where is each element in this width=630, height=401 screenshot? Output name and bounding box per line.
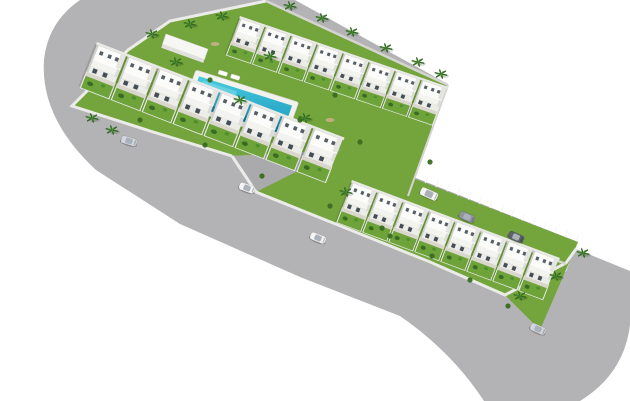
shrub bbox=[387, 233, 392, 238]
shrub bbox=[427, 159, 432, 164]
palm-tree bbox=[435, 70, 449, 78]
shrub bbox=[379, 225, 384, 230]
palm-tree bbox=[412, 58, 426, 66]
shrub bbox=[137, 117, 142, 122]
scene-root bbox=[44, 0, 630, 401]
shrub bbox=[332, 92, 337, 97]
site-plan-render bbox=[0, 0, 630, 401]
shrub bbox=[207, 77, 212, 82]
palm-tree bbox=[577, 249, 591, 257]
shrub bbox=[327, 203, 332, 208]
gravel-patch bbox=[326, 118, 335, 122]
shrub bbox=[259, 173, 264, 178]
shrub bbox=[202, 142, 207, 147]
shrub bbox=[429, 253, 434, 258]
palm-tree bbox=[346, 28, 360, 36]
gravel-patch bbox=[211, 42, 220, 46]
shrub bbox=[357, 139, 362, 144]
shrub bbox=[505, 303, 510, 308]
shrub bbox=[467, 277, 472, 282]
site-plan-svg bbox=[0, 0, 630, 401]
palm-tree bbox=[380, 44, 394, 52]
